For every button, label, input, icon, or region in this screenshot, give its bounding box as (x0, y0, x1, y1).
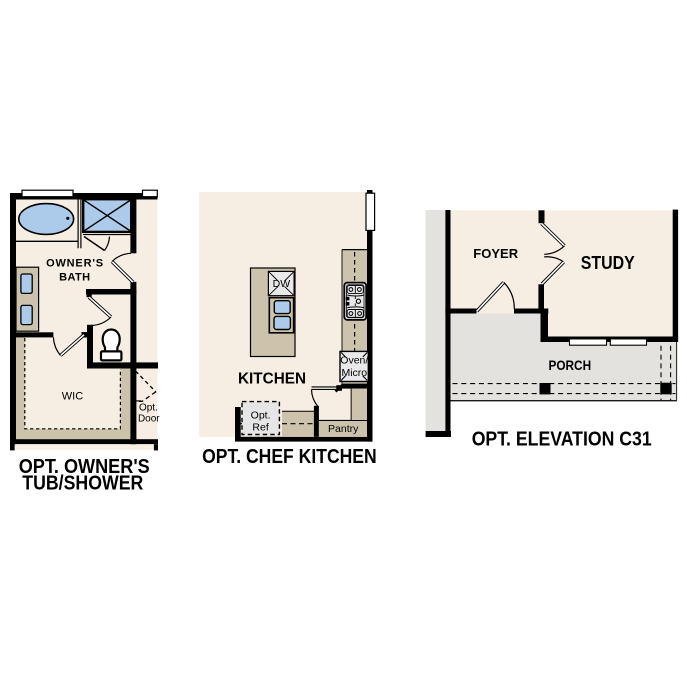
svg-text:Pantry: Pantry (328, 423, 359, 435)
svg-text:Ref: Ref (252, 421, 268, 433)
svg-text:BATH: BATH (59, 272, 90, 284)
svg-text:KITCHEN: KITCHEN (238, 371, 306, 388)
svg-text:OPT. CHEF KITCHEN: OPT. CHEF KITCHEN (202, 446, 377, 468)
svg-text:PORCH: PORCH (548, 357, 591, 373)
svg-text:Opt.: Opt. (139, 403, 158, 414)
svg-text:FOYER: FOYER (473, 246, 518, 261)
svg-text:DW: DW (273, 278, 291, 290)
svg-text:OPT. ELEVATION C31: OPT. ELEVATION C31 (472, 429, 652, 451)
svg-text:WIC: WIC (62, 391, 83, 403)
svg-text:STUDY: STUDY (581, 253, 635, 273)
svg-text:Door: Door (138, 414, 160, 425)
svg-text:Oven/: Oven/ (340, 354, 368, 366)
svg-text:TUB/SHOWER: TUB/SHOWER (22, 472, 143, 494)
svg-text:OWNER'S: OWNER'S (46, 257, 103, 269)
svg-text:Micro: Micro (341, 367, 367, 379)
svg-text:Opt.: Opt. (251, 409, 271, 421)
